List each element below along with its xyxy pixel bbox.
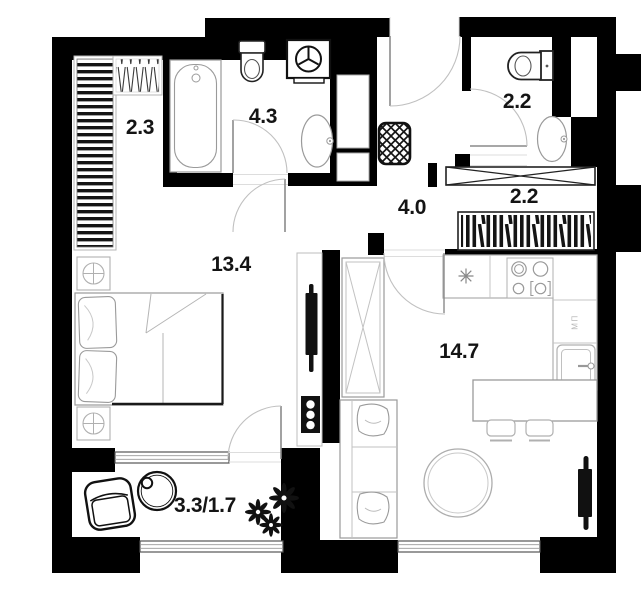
armchair (84, 477, 137, 532)
bar-table (473, 380, 597, 421)
bathtub (170, 60, 221, 172)
electrical-panel (301, 396, 320, 433)
side-table (138, 472, 176, 510)
door-entry (390, 36, 460, 106)
bed (75, 293, 223, 405)
shoe-rack (446, 167, 595, 185)
room-label-bedroom: 13.4 (211, 253, 251, 277)
stool (526, 420, 553, 441)
sink-bathroom (302, 115, 334, 167)
tall-wardrobe (342, 258, 384, 397)
washing-machine-icon (287, 40, 330, 83)
pouf (379, 123, 410, 164)
utility-shaft (330, 18, 377, 186)
sofa (340, 400, 397, 538)
room-label-wardrobe: 2.3 (126, 116, 154, 140)
fridge-icon (459, 269, 474, 284)
window-bedroom-balcony (115, 452, 229, 463)
stove-icon (507, 258, 553, 298)
room-label-wc: 2.2 (503, 90, 531, 114)
nightstand-lamp (77, 257, 110, 290)
hall-wardrobe (458, 212, 594, 250)
room-label-balcony: 3.3/1.7 (174, 494, 236, 518)
radiator-living (578, 456, 592, 530)
room-label-kitchen-living: 14.7 (439, 340, 479, 364)
stool (487, 420, 515, 441)
room-label-bathroom: 4.3 (249, 105, 277, 129)
toilet-wc (508, 51, 553, 80)
door-kitchen (384, 253, 445, 314)
wardrobe-rail (74, 56, 116, 250)
window-balcony (140, 541, 283, 552)
nightstand-lamp (77, 407, 110, 440)
round-rug (424, 449, 492, 517)
apartment-floor-plan: 2.3 4.3 2.2 2.2 4.0 13.4 14.7 3.3/1.7 МП (0, 0, 642, 589)
wardrobe-shelf (113, 56, 162, 95)
sink-wc (538, 117, 568, 162)
toilet-bathroom (239, 41, 265, 82)
window-living (398, 541, 540, 552)
appliance-slot-label: МП (571, 314, 580, 329)
door-bedroom (233, 179, 285, 232)
floor-plan-drawing (0, 0, 642, 589)
room-label-hall-closet: 2.2 (510, 185, 538, 209)
door-balcony (228, 406, 281, 459)
room-label-hallway: 4.0 (398, 196, 426, 220)
